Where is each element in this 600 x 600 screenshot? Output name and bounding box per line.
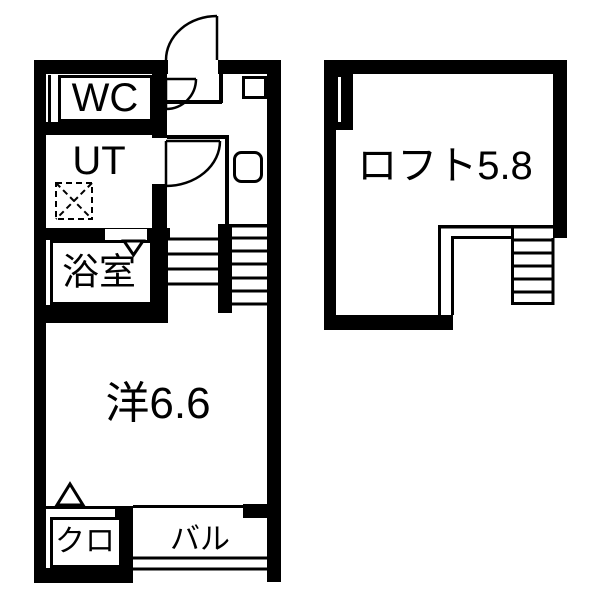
room-label-ut: UT [72,141,125,181]
loft-floorplan [324,60,567,330]
wall-balcony-right-segment [243,504,267,518]
staircase-1f [167,224,267,313]
balcony-window-line [133,505,243,508]
loft-wall-right [553,60,567,238]
wall-bottom [34,568,133,583]
ut-door-swing-icon [166,141,220,186]
floorplan-canvas: WC UT 浴室 洋6.6 クロ バル ロフト5.8 [0,0,600,600]
genkan-step-line-v [219,74,223,103]
entrance-door-swing-icon [166,16,217,60]
shoe-cabinet [244,78,266,98]
stair-center-wall [218,224,232,313]
bath-door-opening [105,229,147,240]
sink-fixture [235,153,262,182]
room-label-closet: クロ [55,527,115,557]
counter-line-v [225,135,229,226]
window-glass-line [48,75,51,122]
room-label-bath: 浴室 [62,254,136,291]
wall-wc-ut [34,122,167,135]
room-label-balcony: バル [170,525,230,555]
wc-door-swing-icon [166,79,196,109]
wall-ut-right [152,184,167,228]
loft-edge-line-h-inner [451,236,512,239]
loft-edge-line-v-inner [451,236,454,315]
washer-space-cross-icon [56,183,92,219]
genkan-step-line-h [167,100,222,104]
counter-line-h [167,135,229,139]
loft-wall-top [324,60,567,74]
room-label-loft: ロフト5.8 [357,146,533,186]
loft-edge-line-v-outer [438,225,441,315]
loft-wall-bottom [324,315,453,330]
stair-right-edge [552,238,555,305]
loft-edge-line-h-outer [438,225,554,229]
wall-right [267,60,281,582]
room-label-wc: WC [72,78,139,118]
loft-wall-left [324,60,336,330]
staircase-loft [511,227,555,305]
loft-window-glass-line [338,77,341,122]
room-label-western: 洋6.6 [105,382,210,426]
wall-bath-top [34,228,170,240]
closet-door-arrow-icon [57,484,83,505]
wall-bath-bottom [34,305,165,323]
wall-top-left [34,60,168,74]
